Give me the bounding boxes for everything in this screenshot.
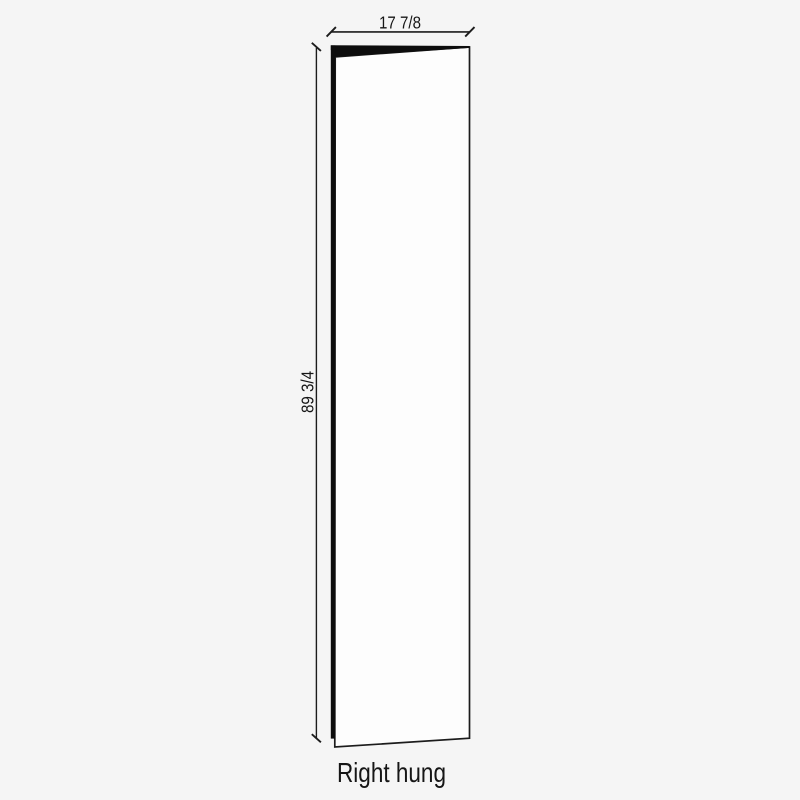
svg-text:89 3/4: 89 3/4 [298, 371, 318, 413]
svg-text:17 7/8: 17 7/8 [379, 13, 421, 33]
svg-text:Right hung: Right hung [337, 757, 446, 788]
